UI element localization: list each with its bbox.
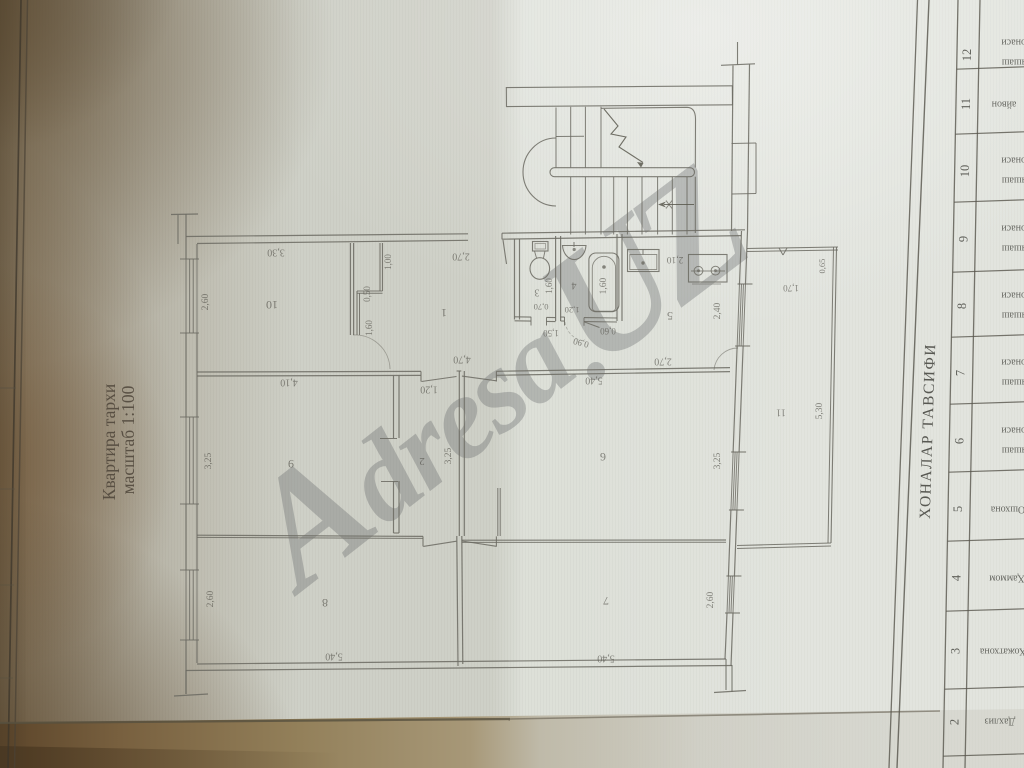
- svg-text:хонаси: хонаси: [1001, 425, 1024, 436]
- svg-text:1,00: 1,00: [383, 254, 393, 270]
- svg-text:хонаси: хонаси: [1001, 37, 1024, 48]
- svg-text:яшаш: яшаш: [1001, 243, 1024, 254]
- svg-text:айвон: айвон: [991, 99, 1016, 110]
- svg-text:0,60: 0,60: [600, 326, 616, 336]
- svg-text:Дахлиз: Дахлиз: [985, 716, 1016, 727]
- svg-text:3,25: 3,25: [204, 452, 214, 469]
- svg-text:5,30: 5,30: [815, 402, 825, 419]
- svg-text:2: 2: [948, 719, 962, 725]
- svg-text:4,10: 4,10: [280, 377, 298, 388]
- svg-text:1,60: 1,60: [544, 278, 554, 294]
- svg-text:0,65: 0,65: [817, 259, 827, 274]
- svg-text:10: 10: [266, 298, 278, 312]
- svg-text:1,50: 1,50: [543, 328, 559, 338]
- svg-text:яшаш: яшаш: [1001, 310, 1024, 321]
- svg-text:яшаш: яшаш: [1001, 377, 1024, 388]
- svg-text:2,60: 2,60: [206, 590, 216, 607]
- svg-text:4: 4: [572, 280, 577, 291]
- svg-text:хонаси: хонаси: [1001, 290, 1024, 301]
- svg-text:3,30: 3,30: [267, 247, 285, 258]
- svg-text:яшаш: яшаш: [1001, 175, 1024, 186]
- svg-text:ХОНАЛАР ТАВСИФИ: ХОНАЛАР ТАВСИФИ: [917, 343, 940, 519]
- svg-text:хонаси: хонаси: [1001, 357, 1024, 368]
- svg-text:2,10: 2,10: [666, 254, 683, 264]
- svg-text:Хожатхона: Хожатхона: [979, 646, 1024, 657]
- svg-text:хонаси: хонаси: [1001, 155, 1024, 166]
- svg-text:0,50: 0,50: [362, 286, 372, 302]
- svg-text:8: 8: [322, 596, 328, 610]
- svg-text:2,70: 2,70: [654, 356, 672, 367]
- svg-text:масштаб 1:100: масштаб 1:100: [118, 385, 138, 494]
- svg-text:5: 5: [951, 506, 965, 512]
- svg-text:1: 1: [441, 306, 447, 320]
- svg-text:5: 5: [667, 309, 673, 323]
- svg-text:9: 9: [288, 457, 294, 471]
- svg-text:1,20: 1,20: [565, 305, 580, 315]
- svg-text:Adresa: Adresa: [208, 264, 601, 625]
- svg-text:5,40: 5,40: [597, 653, 615, 664]
- svg-text:3: 3: [535, 287, 540, 298]
- svg-text:1,70: 1,70: [783, 283, 799, 293]
- svg-text:5,40: 5,40: [585, 375, 603, 386]
- svg-text:яшаш: яшаш: [1001, 57, 1024, 68]
- svg-text:Ошхона: Ошхона: [990, 504, 1024, 515]
- svg-text:2,70: 2,70: [452, 251, 470, 262]
- svg-text:10: 10: [958, 165, 972, 178]
- svg-text:1,60: 1,60: [599, 277, 609, 294]
- svg-text:3,25: 3,25: [444, 447, 454, 464]
- svg-text:8: 8: [955, 303, 969, 309]
- svg-text:6: 6: [600, 450, 606, 464]
- svg-text:1,60: 1,60: [364, 320, 374, 336]
- svg-text:11: 11: [776, 407, 786, 418]
- svg-text:11: 11: [959, 98, 973, 110]
- svg-text:5,40: 5,40: [325, 651, 343, 662]
- svg-text:2,60: 2,60: [706, 591, 716, 608]
- svg-text:Квартира тархи: Квартира тархи: [99, 384, 119, 500]
- svg-text:2: 2: [419, 455, 425, 467]
- svg-text:яшаш: яшаш: [1001, 445, 1024, 456]
- svg-text:3,25: 3,25: [713, 452, 723, 469]
- svg-text:4: 4: [950, 574, 964, 581]
- svg-text:12: 12: [960, 49, 974, 62]
- svg-text:Ҳаммом: Ҳаммом: [989, 573, 1024, 584]
- svg-text:4,70: 4,70: [453, 354, 471, 365]
- svg-text:2,60: 2,60: [201, 293, 211, 310]
- svg-text:хонаси: хонаси: [1001, 223, 1024, 234]
- svg-text:7: 7: [954, 370, 968, 376]
- svg-text:6: 6: [953, 438, 967, 444]
- svg-text:2,40: 2,40: [713, 302, 723, 319]
- svg-text:0,70: 0,70: [534, 302, 549, 312]
- svg-text:3: 3: [949, 648, 963, 654]
- svg-text:7: 7: [603, 594, 609, 608]
- svg-text:1,20: 1,20: [420, 384, 438, 395]
- svg-text:9: 9: [957, 236, 971, 242]
